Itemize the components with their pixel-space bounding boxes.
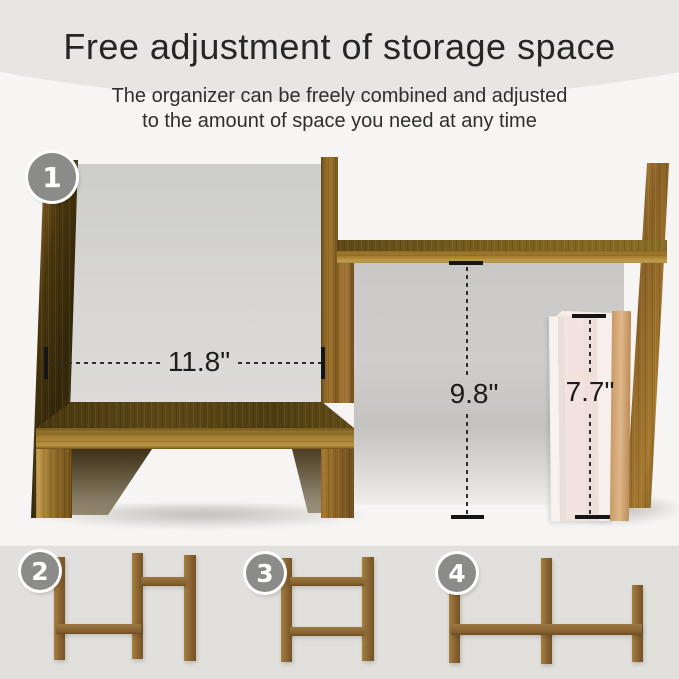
book-front bbox=[549, 316, 614, 522]
step-2-badge: 2 bbox=[21, 552, 59, 590]
step-1-badge: 1 bbox=[28, 153, 76, 201]
height-dash-bottom bbox=[466, 414, 468, 515]
right-shelf-top-surface bbox=[337, 240, 667, 251]
width-dimension-label: 11.8" bbox=[144, 346, 254, 378]
subtitle-line-2: to the amount of space you need at any t… bbox=[0, 109, 679, 134]
config3-bottom-shelf bbox=[290, 627, 364, 636]
height-dimension-label: 9.8" bbox=[424, 378, 524, 410]
book-back bbox=[610, 311, 631, 521]
book-height-tick-top bbox=[572, 314, 606, 318]
middle-leg bbox=[321, 449, 354, 518]
middle-leg-inner-face bbox=[292, 449, 321, 513]
left-shelf-front-edge bbox=[36, 428, 354, 449]
step-3-badge: 3 bbox=[246, 554, 284, 592]
config2-right-panel bbox=[184, 555, 196, 661]
config2-low-shelf bbox=[56, 624, 141, 634]
book-height-dash-top bbox=[589, 320, 591, 372]
config3-top-shelf bbox=[290, 577, 364, 586]
subtitle-line-1: The organizer can be freely combined and… bbox=[0, 84, 679, 109]
config4-shelf bbox=[451, 624, 642, 635]
height-tick-bottom bbox=[451, 515, 484, 519]
config4-middle-post bbox=[541, 558, 552, 664]
config2-middle-panel bbox=[132, 553, 143, 659]
book-height-dimension-label: 7.7" bbox=[540, 376, 640, 408]
bottom-configurations-strip bbox=[0, 545, 679, 679]
right-side-panel bbox=[624, 163, 670, 508]
width-tick-right bbox=[321, 347, 325, 379]
height-dash-top bbox=[466, 267, 468, 376]
config3-right-panel bbox=[362, 557, 374, 661]
width-tick-left bbox=[44, 347, 48, 379]
left-shelf-top-surface bbox=[36, 402, 354, 428]
page-subtitle: The organizer can be freely combined and… bbox=[0, 84, 679, 134]
book-height-tick-bottom bbox=[575, 515, 610, 519]
product-infographic: Free adjustment of storage space The org… bbox=[0, 0, 679, 679]
page-title: Free adjustment of storage space bbox=[0, 26, 679, 68]
right-shelf-front-edge bbox=[337, 251, 667, 263]
step-4-badge: 4 bbox=[438, 554, 476, 592]
book-height-dash-bottom bbox=[589, 414, 591, 515]
middle-panel-lower bbox=[337, 263, 354, 403]
config2-high-shelf bbox=[141, 577, 186, 586]
height-tick-top bbox=[449, 261, 483, 265]
left-leg bbox=[36, 449, 72, 518]
